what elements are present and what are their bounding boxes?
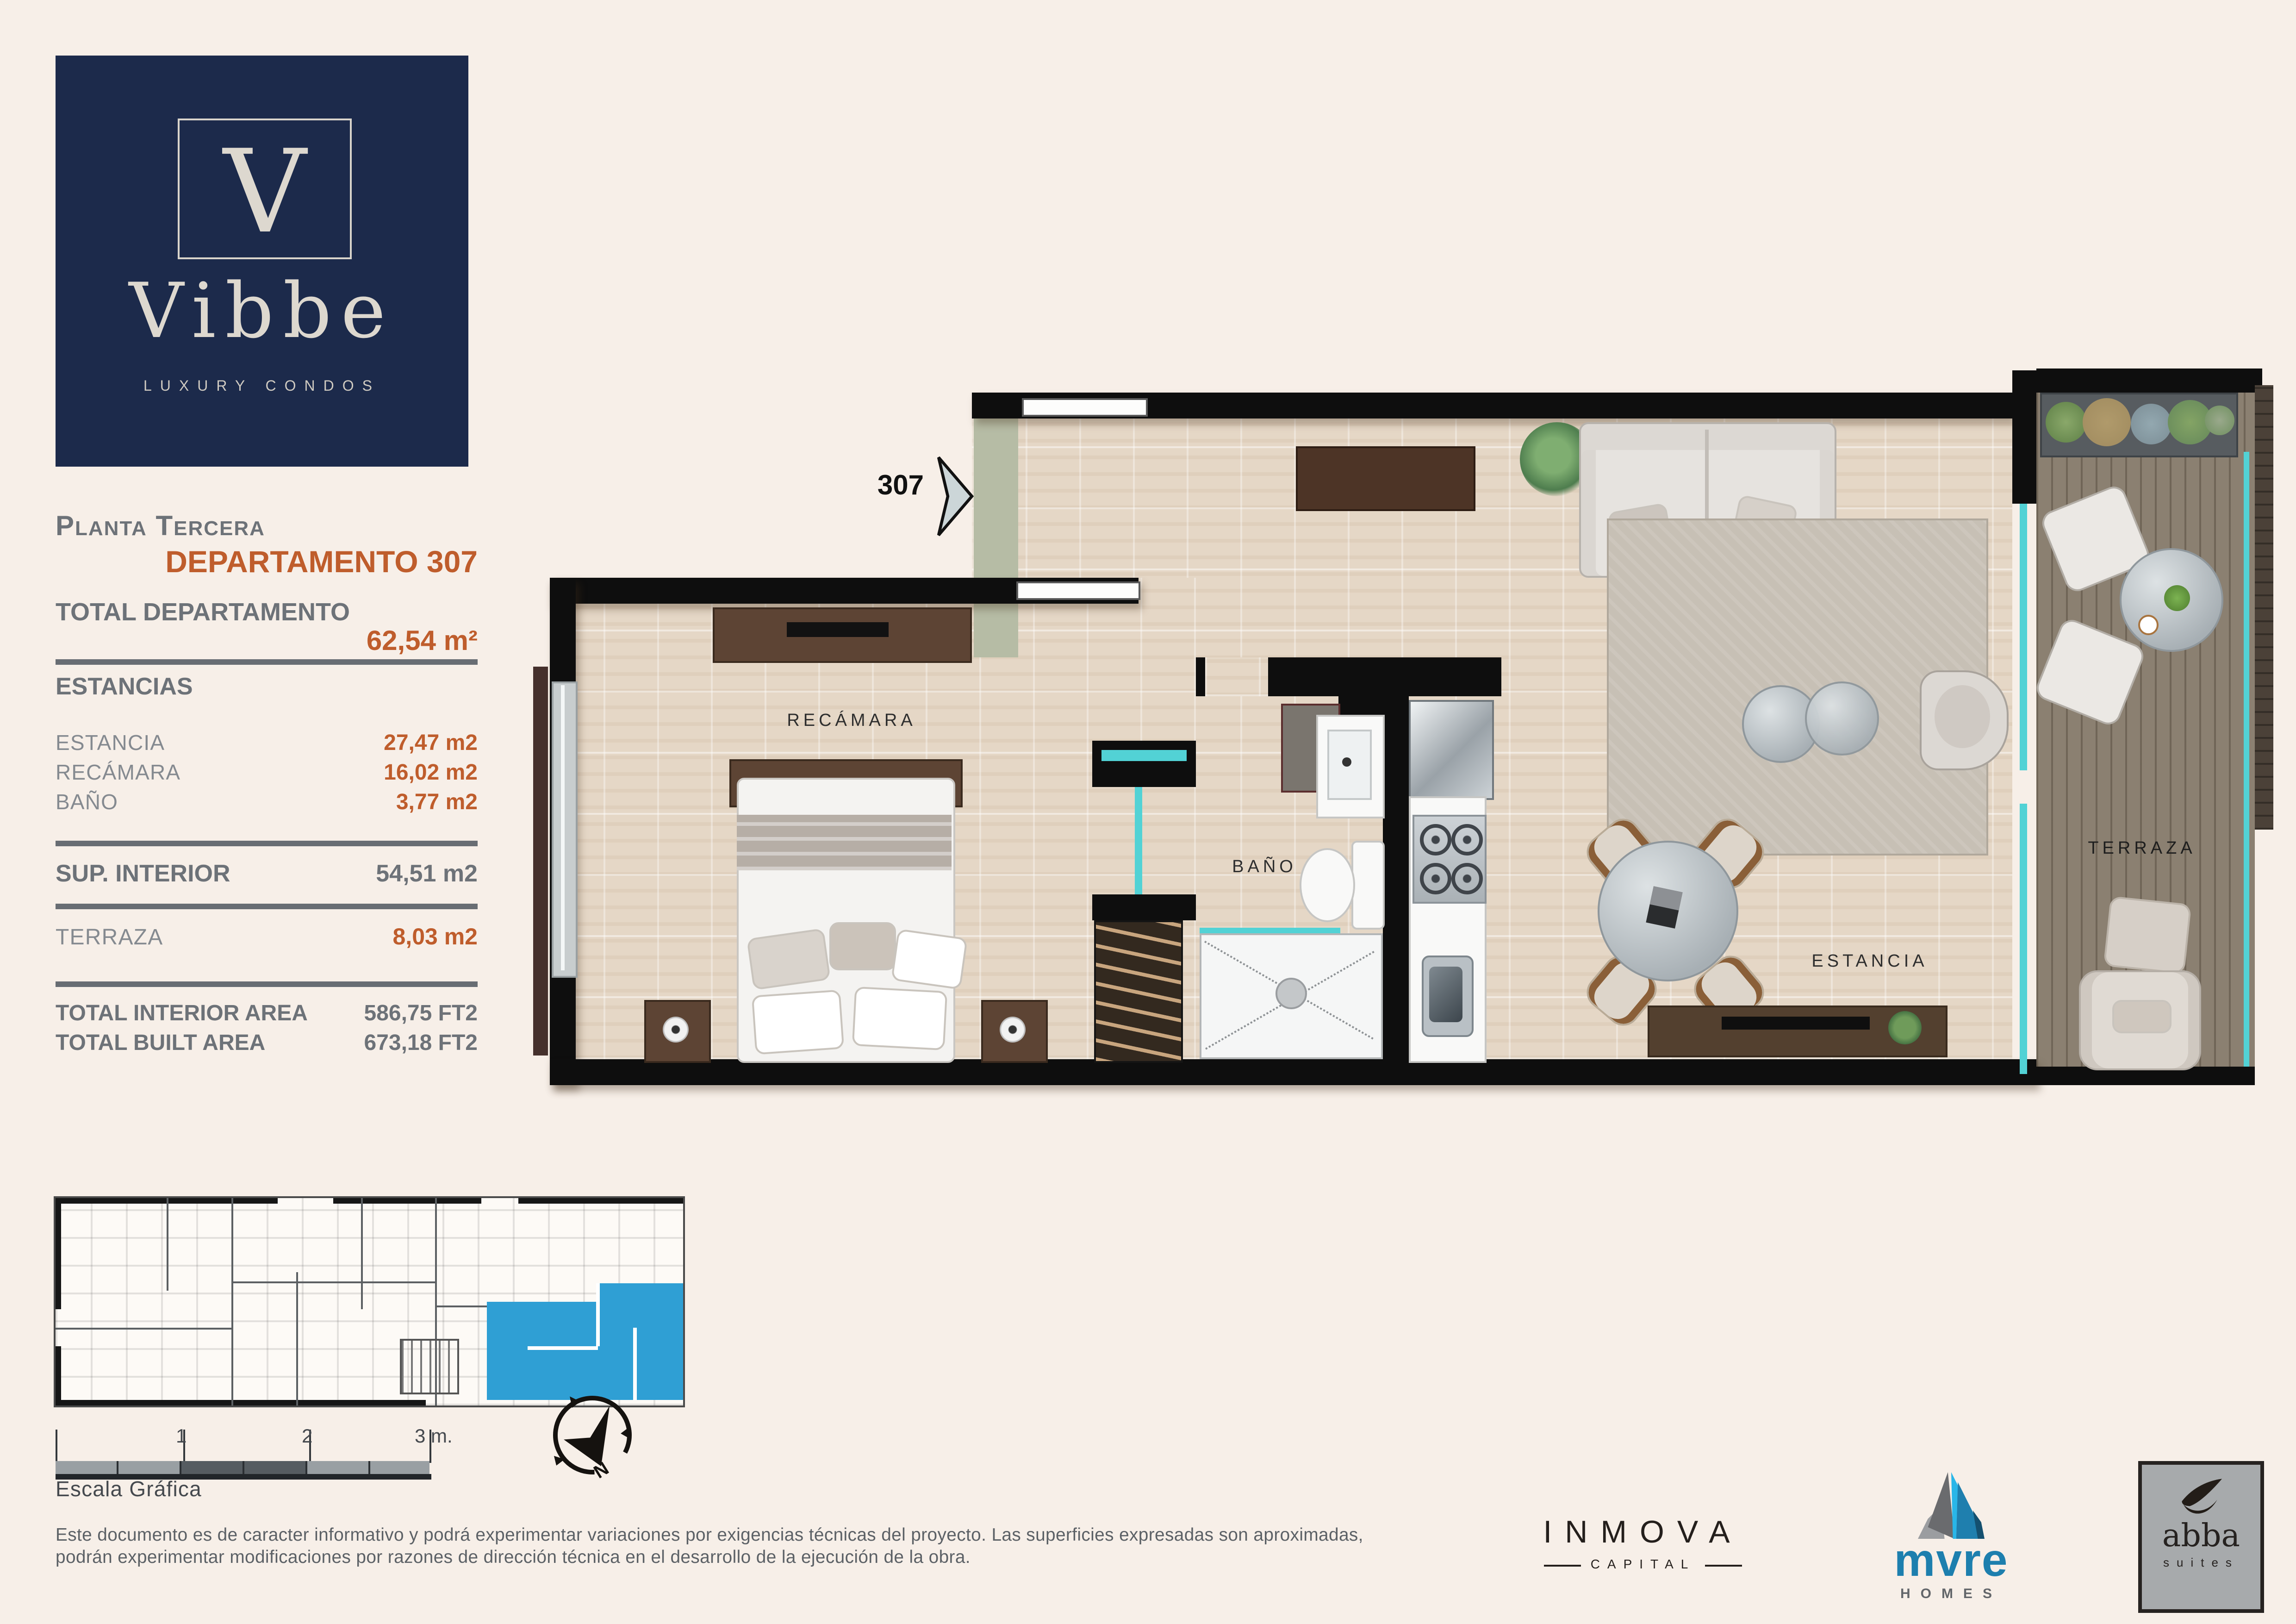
planter-box (2040, 393, 2238, 457)
divider (56, 841, 478, 845)
living-room-label: ESTANCIA (1759, 952, 1981, 972)
scale-segment (118, 1461, 181, 1474)
bed-pillow (829, 922, 896, 970)
plant (1888, 1011, 1922, 1044)
unit-number: 307 (805, 470, 924, 502)
scale-segment (370, 1461, 429, 1474)
sup-interior-label: SUP. INTERIOR (56, 859, 230, 887)
scale-tick-label: 1 (176, 1426, 187, 1448)
key-plan-line (167, 1198, 168, 1291)
terrace-value: 8,03 m2 (393, 924, 478, 950)
scale-bar (56, 1461, 431, 1474)
divider (56, 659, 478, 664)
curtain-strip (533, 667, 548, 1056)
bed-pillow (752, 989, 844, 1055)
wall-vanity-block (1092, 741, 1196, 787)
logo-monogram: V (180, 135, 350, 250)
armchair-seat (1935, 685, 1990, 748)
inmova-logo: INMOVA CAPITAL (1509, 1515, 1777, 1572)
compass-icon: N (548, 1391, 637, 1480)
hall-console (1296, 446, 1475, 511)
glass-partition (1135, 787, 1142, 894)
wall-bottom (550, 1059, 2036, 1085)
total-dep-value: 62,54 m² (56, 626, 478, 657)
abba-sub: suites (2163, 1557, 2239, 1570)
bedroom-window (552, 681, 578, 978)
planter-plant (2083, 398, 2131, 446)
bed-pillow (747, 928, 831, 990)
stove-burner (1451, 824, 1483, 856)
terrace-cushion (2103, 896, 2192, 974)
inmova-dash (1544, 1565, 1581, 1567)
vanity-mirror (1101, 750, 1187, 761)
shower-drain (1276, 978, 1307, 1009)
scale-segment (244, 1461, 307, 1474)
key-plan-line (361, 1198, 363, 1309)
bath-door-opening (1205, 657, 1268, 696)
window-glass-line (561, 685, 565, 970)
key-plan-stairs (400, 1339, 459, 1394)
terrace-pillow (2112, 1000, 2172, 1033)
shower-glass (1200, 928, 1340, 933)
terrace-door-opening (2014, 770, 2035, 804)
planter-plant (2205, 406, 2234, 435)
unit-label: DEPARTAMENTO 307 (56, 546, 478, 581)
inmova-dash (1705, 1565, 1742, 1567)
terrace-overhang (2255, 385, 2273, 830)
key-plan-wall (56, 1346, 61, 1405)
key-plan-wall (518, 1198, 683, 1204)
bed-pillow (891, 929, 968, 990)
floor-label: Planta Tercera (56, 511, 265, 543)
room-row: BAÑO 3,77 m2 (56, 789, 478, 815)
floor-title: Planta Tercera (56, 511, 478, 543)
sup-interior-row: SUP. INTERIOR 54,51 m2 (56, 859, 478, 887)
key-plan-wall (333, 1198, 481, 1204)
terrace-table-plant (2164, 585, 2190, 611)
wall-bath-east (1383, 696, 1409, 1059)
key-plan-wall (56, 1198, 61, 1309)
fridge (1409, 700, 1494, 800)
wardrobe (1094, 920, 1183, 1063)
total-dep-label: TOTAL DEPARTAMENTO (56, 598, 350, 626)
total-row: TOTAL BUILT AREA 673,18 FT2 (56, 1030, 478, 1056)
room-value: 27,47 m2 (384, 730, 478, 756)
terrace-rail-glass (2244, 452, 2249, 1067)
mvre-logo: mvre HOMES (1877, 1472, 2025, 1602)
highlighted-unit-wall (528, 1346, 598, 1349)
bedroom-sliding-door (1016, 581, 1140, 600)
terrace-row: TERRAZA 8,03 m2 (56, 924, 478, 950)
scale-tick-label: 2 (302, 1426, 312, 1448)
highlighted-unit-wall (596, 1283, 599, 1346)
bedroom-room-label: RECÁMARA (722, 711, 981, 731)
rooms-section-label: ESTANCIAS (56, 672, 193, 700)
disclaimer-line-1: Este documento es de caracter informativ… (56, 1526, 1363, 1547)
room-row: ESTANCIA 27,47 m2 (56, 730, 478, 756)
coffee-table (1805, 681, 1879, 756)
unit-title: DEPARTAMENTO 307 (56, 546, 478, 581)
total-label: TOTAL BUILT AREA (56, 1030, 265, 1056)
planter-plant (2131, 404, 2172, 444)
wall-closet-stub (1092, 894, 1196, 920)
living-tv (1722, 1017, 1870, 1030)
inmova-name: INMOVA (1543, 1515, 1742, 1552)
key-plan-wall (56, 1400, 426, 1405)
scale-title: Escala Gráfica (56, 1480, 202, 1502)
room-label: BAÑO (56, 793, 118, 815)
kitchen-sink-basin (1429, 967, 1462, 1022)
bedroom-tv (787, 622, 889, 637)
disclaimer-line-2: podrán experimentar modificaciones por r… (56, 1548, 971, 1569)
floor-plan: 307 (528, 348, 2273, 1085)
scale-tick (56, 1430, 58, 1463)
scale-segment (307, 1461, 370, 1474)
brand-logo: V Vibbe LUXURY CONDOS (56, 56, 468, 467)
total-dep-value-row: 62,54 m² (56, 626, 478, 657)
total-value: 586,75 FT2 (364, 1000, 478, 1026)
brand-name: Vibbe (56, 274, 468, 350)
nightstand-speaker (1000, 1017, 1026, 1043)
highlighted-unit (598, 1283, 683, 1400)
key-plan-line (296, 1272, 298, 1405)
entry-tile-floor (974, 418, 1018, 657)
brand-tagline: LUXURY CONDOS (56, 378, 468, 394)
total-label: TOTAL INTERIOR AREA (56, 1000, 308, 1026)
logo-frame: V (178, 119, 352, 259)
sup-interior-value: 54,51 m2 (376, 859, 478, 887)
toilet-tank (1351, 841, 1385, 930)
highlighted-unit (487, 1302, 598, 1400)
room-value: 16,02 m2 (384, 759, 478, 785)
scale-segment (181, 1461, 244, 1474)
key-plan-line (231, 1281, 435, 1283)
key-plan (54, 1196, 685, 1407)
scale-baseline (56, 1474, 431, 1480)
divider (56, 904, 478, 908)
key-plan-line (56, 1328, 231, 1330)
scale-tick-label: 3 m. (415, 1426, 453, 1448)
stove-burner (1451, 863, 1483, 894)
highlighted-unit-wall (633, 1328, 636, 1400)
room-row: RECÁMARA 16,02 m2 (56, 759, 478, 785)
abba-logo: abba suites (2138, 1461, 2264, 1613)
total-value: 673,18 FT2 (364, 1030, 478, 1056)
compass-north-label: N (590, 1458, 612, 1480)
abba-leaf-icon (2177, 1476, 2225, 1520)
key-plan-line (231, 1198, 233, 1405)
mvre-mountain-icon (1914, 1472, 1988, 1539)
coffee-cup (2138, 615, 2159, 635)
room-label: RECÁMARA (56, 763, 180, 785)
terrace-label: TERRAZA (56, 924, 163, 950)
wall-terrace-top (2036, 369, 2262, 393)
entry-sliding-door (1022, 398, 1148, 417)
inmova-sub-text: CAPITAL (1591, 1559, 1696, 1572)
stove-burner (1420, 863, 1451, 894)
room-value: 3,77 m2 (396, 789, 478, 815)
bed-pillow (852, 987, 947, 1050)
scale-segment (56, 1461, 118, 1474)
nightstand-speaker (663, 1017, 689, 1043)
room-label: ESTANCIA (56, 733, 165, 756)
bed-blanket (737, 815, 952, 870)
stove-burner (1420, 824, 1451, 856)
mvre-sub: HOMES (1900, 1585, 2002, 1602)
rooms-section: ESTANCIAS (56, 672, 478, 700)
total-dep-row: TOTAL DEPARTAMENTO (56, 598, 478, 626)
divider (56, 981, 478, 986)
entry-arrow-icon (937, 456, 977, 537)
wall-terrace-stub (2012, 370, 2036, 504)
floorplan-sheet: V Vibbe LUXURY CONDOS Planta Tercera DEP… (0, 0, 2296, 1624)
abba-name: abba (2162, 1522, 2240, 1554)
inmova-sub: CAPITAL (1544, 1559, 1742, 1572)
mvre-name: mvre (1894, 1539, 2008, 1585)
terrace-room-label: TERRAZA (2031, 839, 2253, 859)
bath-sink-drain (1342, 757, 1351, 767)
planter-plant (2046, 402, 2086, 443)
unit-info-panel: Planta Tercera DEPARTAMENTO 307 TOTAL DE… (56, 500, 478, 1111)
toilet-bowl (1300, 848, 1355, 922)
total-row: TOTAL INTERIOR AREA 586,75 FT2 (56, 1000, 478, 1026)
